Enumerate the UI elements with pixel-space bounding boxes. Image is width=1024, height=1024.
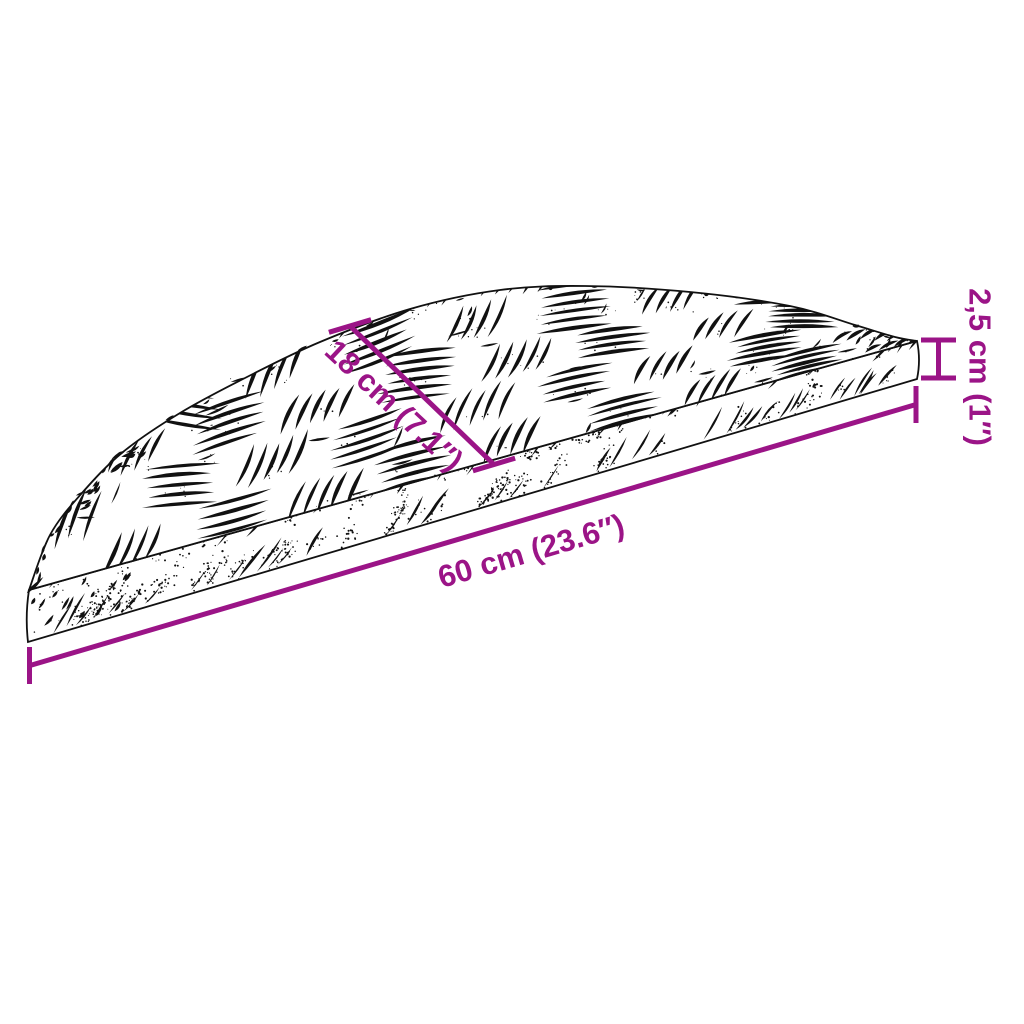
svg-text:2,5 cm (1″): 2,5 cm (1″): [963, 288, 998, 446]
